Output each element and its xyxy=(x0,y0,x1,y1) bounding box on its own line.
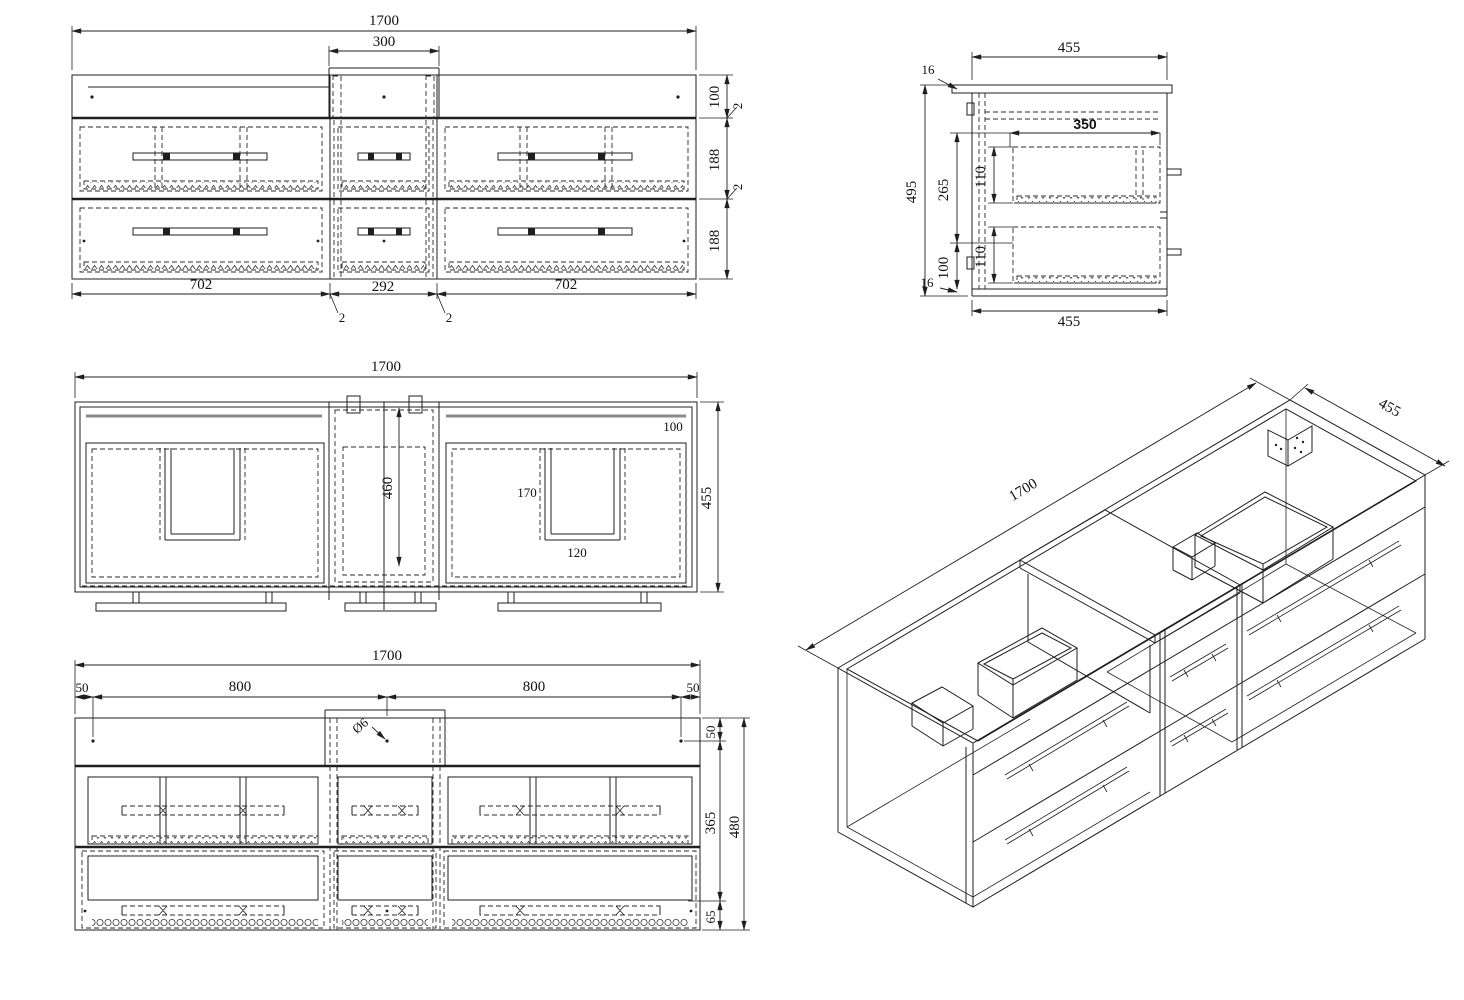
dim-front-panel-b: 2 xyxy=(446,310,453,325)
dim-side-height: 495 xyxy=(904,181,920,204)
dim-rear-middle: 365 xyxy=(703,812,719,835)
front-slide-hatch xyxy=(343,263,424,269)
dim-side-drawer-b: 110 xyxy=(973,246,989,268)
iso-carcass xyxy=(838,400,1425,907)
dim-front-recess: 300 xyxy=(373,34,396,50)
dim-plan-depth: 455 xyxy=(699,487,715,510)
dim-plan-cutout-length: 170 xyxy=(517,485,537,500)
rear-outline xyxy=(75,710,700,930)
dim-side-depth-bottom: 455 xyxy=(1058,314,1081,330)
front-hidden-lines xyxy=(80,76,688,279)
dim-plan-back-rail: 100 xyxy=(663,419,683,434)
rear-shelf-lines xyxy=(75,766,700,847)
front-slide-hatch xyxy=(450,182,683,188)
dim-rear-bottom: 65 xyxy=(703,911,718,924)
iso-right-sink-box xyxy=(1195,492,1333,603)
front-dimension-lines xyxy=(72,31,727,294)
iso-extension-lines xyxy=(798,378,1449,668)
iso-mounting-bracket xyxy=(1268,426,1312,466)
dim-front-gap-b: 2 xyxy=(730,184,745,191)
dim-rear-overall: 1700 xyxy=(372,648,402,664)
dim-side-bottom-thickness: 16 xyxy=(921,275,935,290)
dim-front-top-rail: 100 xyxy=(707,86,723,109)
rear-slide-hatch xyxy=(453,837,687,843)
dim-side-drawer-a: 110 xyxy=(973,166,989,188)
rear-dimension-lines xyxy=(75,665,744,930)
rear-elevation-view: 1700 50 800 800 50 Ø6 50 365 65 480 xyxy=(75,648,750,930)
front-slide-hatch xyxy=(85,263,317,269)
rear-handle-marks xyxy=(159,806,624,915)
dim-front-drawer-2: 188 xyxy=(707,230,723,253)
dim-plan-overall: 1700 xyxy=(371,359,401,375)
drawing-sheet: 1700 300 100 2 188 2 188 702 292 702 2 2 xyxy=(0,0,1464,1000)
front-slide-hatch xyxy=(343,182,424,188)
dim-rear-top: 50 xyxy=(703,726,718,739)
plan-outline xyxy=(75,396,697,611)
front-slide-hatch xyxy=(85,182,317,188)
rear-slide-hatch xyxy=(93,837,317,843)
dim-plan-recess-depth: 460 xyxy=(380,477,396,500)
dim-front-panel-a: 2 xyxy=(339,310,346,325)
side-hidden-lines xyxy=(979,93,1160,289)
dim-side-bottom-offset: 100 xyxy=(936,257,952,280)
technical-drawing-canvas: 1700 300 100 2 188 2 188 702 292 702 2 2 xyxy=(0,0,1464,1000)
side-slide-hatch xyxy=(1018,277,1155,282)
dim-rear-margin-right: 50 xyxy=(687,680,700,695)
side-dimension-lines xyxy=(925,57,1167,311)
dim-front-gap-a: 2 xyxy=(730,103,745,110)
iso-interior xyxy=(847,409,1416,897)
dim-side-depth-top: 455 xyxy=(1058,40,1081,56)
dim-rear-margin-left: 50 xyxy=(76,680,89,695)
front-carcass-outline xyxy=(72,68,696,279)
dim-rear-span-left: 800 xyxy=(229,679,252,695)
dim-iso-length: 1700 xyxy=(1006,476,1040,505)
dim-front-section-left: 702 xyxy=(190,277,213,293)
front-elevation-view: 1700 300 100 2 188 2 188 702 292 702 2 2 xyxy=(72,13,745,325)
dim-plan-cutout-width: 120 xyxy=(567,545,587,560)
rear-bottom-hatch xyxy=(92,918,318,927)
plan-extension-lines xyxy=(75,372,724,592)
iso-small-box-center xyxy=(1173,533,1215,580)
dim-iso-depth: 455 xyxy=(1376,396,1403,421)
rear-extension-lines xyxy=(75,660,750,930)
rear-hidden-lines xyxy=(82,718,696,930)
side-section-view: 455 16 495 265 100 16 350 110 110 455 xyxy=(904,40,1181,330)
dim-front-drawer-1: 188 xyxy=(707,149,723,172)
iso-dimension-lines xyxy=(806,383,1445,650)
side-slide-hatch xyxy=(1018,197,1155,202)
dim-front-section-right: 702 xyxy=(555,277,578,293)
rear-bottom-hatch xyxy=(342,918,428,927)
dim-rear-height: 480 xyxy=(727,816,743,839)
dim-side-inner-height: 265 xyxy=(936,179,952,202)
iso-small-box-left xyxy=(912,687,973,746)
dim-side-drawer-depth: 350 xyxy=(1073,116,1097,132)
rear-slide-hatch xyxy=(343,837,427,843)
isometric-view: 1700 455 xyxy=(798,378,1449,907)
dim-rear-span-right: 800 xyxy=(523,679,546,695)
rear-bottom-hatch xyxy=(452,918,688,927)
plan-view: 1700 100 455 460 170 120 xyxy=(75,359,724,611)
dim-side-top-thickness: 16 xyxy=(922,62,936,77)
dim-front-section-center: 292 xyxy=(372,279,395,295)
iso-drawer-handles xyxy=(1005,541,1401,844)
dim-front-overall: 1700 xyxy=(369,13,399,29)
front-handle-mounts xyxy=(163,153,605,235)
front-slide-hatch xyxy=(450,263,683,269)
